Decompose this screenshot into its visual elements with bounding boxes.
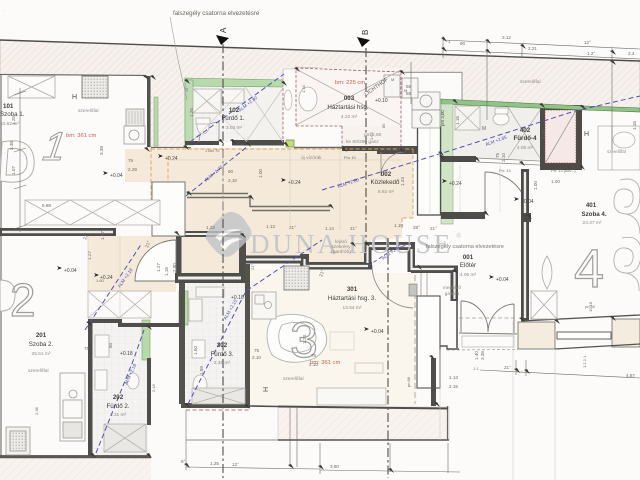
svg-text:1.60: 1.60 bbox=[193, 346, 198, 355]
svg-text:1.07: 1.07 bbox=[11, 166, 16, 175]
svg-text:2.29: 2.29 bbox=[128, 167, 137, 172]
svg-text:10 18: 10 18 bbox=[588, 301, 593, 312]
svg-text:1.25: 1.25 bbox=[11, 116, 16, 125]
svg-text:1.18: 1.18 bbox=[632, 121, 637, 130]
svg-text:Szoba 2.: Szoba 2. bbox=[29, 341, 54, 348]
svg-text:90: 90 bbox=[460, 41, 466, 46]
svg-text:2.21: 2.21 bbox=[528, 46, 537, 51]
svg-text:201: 201 bbox=[36, 332, 47, 339]
svg-text:Pn: 13 (köv...): Pn: 13 (köv...) bbox=[551, 168, 576, 173]
svg-text:M: M bbox=[482, 126, 486, 132]
svg-text:402: 402 bbox=[520, 127, 531, 134]
svg-text:szerelőfal: szerelőfal bbox=[520, 79, 541, 85]
svg-text:ke 80/260 ganz: ke 80/260 ganz bbox=[346, 139, 379, 145]
svg-text:4.22 m²: 4.22 m² bbox=[341, 114, 358, 120]
svg-text:003: 003 bbox=[344, 95, 355, 102]
svg-text:302: 302 bbox=[217, 342, 228, 349]
svg-text:301: 301 bbox=[347, 286, 358, 293]
svg-text:4.05 m²: 4.05 m² bbox=[517, 145, 534, 151]
svg-text:1.25: 1.25 bbox=[210, 461, 219, 466]
svg-text:401: 401 bbox=[586, 202, 597, 209]
svg-text:1.00: 1.00 bbox=[551, 179, 560, 184]
svg-text:4: 4 bbox=[574, 239, 604, 299]
svg-text:2.10: 2.10 bbox=[252, 355, 261, 360]
svg-text:+0.04: +0.04 bbox=[496, 277, 509, 283]
svg-text:H: H bbox=[72, 94, 77, 101]
svg-text:pm 3,00: pm 3,00 bbox=[440, 110, 445, 126]
svg-text:+0.04: +0.04 bbox=[521, 199, 534, 205]
svg-text:1.00: 1.00 bbox=[258, 169, 263, 178]
svg-text:1.14: 1.14 bbox=[325, 226, 334, 231]
svg-text:4.06 m²: 4.06 m² bbox=[460, 272, 477, 278]
svg-text:H: H bbox=[263, 387, 270, 392]
svg-text:Háztartási hsg.: Háztartási hsg. bbox=[327, 104, 369, 111]
svg-text:2: 2 bbox=[10, 274, 36, 326]
svg-text:75: 75 bbox=[495, 152, 500, 158]
svg-text:21°: 21° bbox=[250, 264, 255, 270]
svg-text:+0.04: +0.04 bbox=[110, 173, 123, 179]
svg-text:Pn: 13: Pn: 13 bbox=[499, 168, 511, 173]
svg-text:21°: 21° bbox=[350, 226, 357, 231]
svg-text:102: 102 bbox=[229, 107, 240, 114]
svg-text:szerelőfal: szerelőfal bbox=[607, 149, 626, 154]
svg-text:3.38: 3.38 bbox=[480, 351, 485, 360]
svg-text:2.18: 2.18 bbox=[151, 383, 156, 392]
svg-text:+0.10: +0.10 bbox=[231, 295, 244, 301]
svg-text:2.15: 2.15 bbox=[449, 384, 458, 389]
svg-text:25.51 m²: 25.51 m² bbox=[32, 351, 51, 357]
svg-text:szerelőfal: szerelőfal bbox=[78, 108, 99, 114]
svg-text:80: 80 bbox=[108, 342, 113, 348]
svg-text:101: 101 bbox=[3, 103, 14, 110]
svg-text:85: 85 bbox=[381, 123, 386, 128]
svg-text:H: H bbox=[584, 131, 589, 138]
svg-text:1.00: 1.00 bbox=[533, 181, 538, 190]
svg-text:1.63: 1.63 bbox=[369, 131, 374, 140]
svg-text:1.2 2.1: 1.2 2.1 bbox=[582, 355, 587, 368]
svg-text:Háztartási hsg. 3.: Háztartási hsg. 3. bbox=[328, 295, 376, 302]
svg-text:2.10: 2.10 bbox=[309, 362, 318, 367]
svg-text:1.40: 1.40 bbox=[474, 351, 479, 360]
svg-text:+0.10: +0.10 bbox=[375, 98, 388, 104]
svg-text:4.87: 4.87 bbox=[626, 373, 635, 378]
svg-text:+0.18: +0.18 bbox=[120, 351, 133, 357]
svg-text:1.22: 1.22 bbox=[206, 225, 215, 230]
svg-text:21°: 21° bbox=[430, 226, 437, 231]
svg-text:szerelőfal: szerelőfal bbox=[28, 368, 49, 374]
svg-text:1.13: 1.13 bbox=[449, 375, 458, 380]
svg-text:1.27: 1.27 bbox=[100, 231, 105, 240]
svg-text:001: 001 bbox=[463, 254, 474, 261]
svg-text:1.34: 1.34 bbox=[301, 84, 306, 93]
svg-text:1 köv 70: 1 köv 70 bbox=[205, 149, 219, 153]
svg-text:bm: 361 cm: bm: 361 cm bbox=[66, 133, 96, 139]
svg-text:meglévő: meglévő bbox=[443, 285, 461, 291]
svg-text:+0.04: +0.04 bbox=[64, 268, 77, 274]
svg-text:12°: 12° bbox=[232, 462, 239, 467]
svg-text:19: 19 bbox=[184, 87, 189, 92]
svg-text:falszegély csatorna elvezetésr: falszegély csatorna elvezetésre bbox=[173, 10, 260, 17]
svg-text:9.92 m²: 9.92 m² bbox=[378, 189, 395, 195]
svg-text:bm: 225 cm: bm: 225 cm bbox=[335, 80, 365, 86]
svg-text:002: 002 bbox=[381, 171, 392, 178]
svg-text:28°: 28° bbox=[413, 225, 420, 230]
svg-text:A: A bbox=[219, 27, 228, 33]
svg-text:1.13: 1.13 bbox=[266, 224, 275, 229]
svg-text:(gardrób): (gardrób) bbox=[331, 249, 351, 255]
svg-text:1.16: 1.16 bbox=[164, 267, 169, 276]
svg-text:2,10: 2,10 bbox=[228, 178, 237, 183]
svg-text:75: 75 bbox=[128, 158, 134, 163]
svg-text:90: 90 bbox=[228, 169, 234, 174]
svg-text:+0.24: +0.24 bbox=[165, 156, 178, 162]
svg-text:12°: 12° bbox=[584, 40, 591, 45]
svg-text:75: 75 bbox=[254, 348, 260, 353]
svg-text:Fürdő 1.: Fürdő 1. bbox=[221, 115, 244, 122]
svg-text:1.2°: 1.2° bbox=[587, 51, 595, 56]
svg-text:1.16: 1.16 bbox=[455, 116, 460, 125]
svg-text:falszegély csatorna elvezetésr: falszegély csatorna elvezetésre bbox=[426, 244, 504, 250]
svg-text:1.43: 1.43 bbox=[400, 177, 405, 186]
svg-text:Szoba 4.: Szoba 4. bbox=[581, 211, 606, 218]
svg-text:Fürdő 2.: Fürdő 2. bbox=[106, 403, 129, 410]
svg-text:5.88: 5.88 bbox=[42, 203, 51, 208]
svg-text:3.31 m²: 3.31 m² bbox=[110, 412, 127, 418]
svg-text:+0.04: +0.04 bbox=[371, 329, 384, 335]
svg-text:3.80: 3.80 bbox=[330, 464, 339, 469]
svg-text:pn 88: pn 88 bbox=[406, 376, 411, 387]
svg-text:szerelőfal: szerelőfal bbox=[283, 376, 304, 382]
svg-text:1.23: 1.23 bbox=[302, 335, 307, 344]
svg-text:.: . bbox=[3, 7, 4, 13]
svg-text:1.10: 1.10 bbox=[394, 223, 403, 228]
svg-text:13.54 m²: 13.54 m² bbox=[343, 305, 362, 311]
svg-text:M: M bbox=[404, 88, 407, 93]
svg-text:22.62 m²: 22.62 m² bbox=[0, 121, 19, 127]
svg-text:Fürdő-4: Fürdő-4 bbox=[513, 135, 537, 142]
svg-text:3.38: 3.38 bbox=[9, 141, 14, 150]
svg-text:3.03 m²: 3.03 m² bbox=[226, 125, 243, 131]
svg-text:2.46 m²: 2.46 m² bbox=[214, 360, 231, 366]
svg-text:Fürdő 3.: Fürdő 3. bbox=[210, 351, 233, 358]
svg-text:2.10: 2.10 bbox=[501, 153, 506, 162]
svg-text:2.38: 2.38 bbox=[34, 406, 39, 415]
svg-text:1.23: 1.23 bbox=[541, 130, 546, 139]
svg-text:Közlekedő: Közlekedő bbox=[371, 179, 400, 186]
svg-text:1.27: 1.27 bbox=[156, 263, 161, 272]
svg-text:21°: 21° bbox=[504, 365, 511, 370]
svg-text:Pro 10: Pro 10 bbox=[344, 155, 357, 160]
svg-text:3.12: 3.12 bbox=[502, 35, 511, 40]
svg-text:1: 1 bbox=[448, 39, 451, 44]
svg-text:gázóra: gázóra bbox=[445, 291, 460, 297]
svg-text:1.1: 1.1 bbox=[473, 366, 479, 371]
svg-text:24.37 m²: 24.37 m² bbox=[583, 220, 602, 226]
svg-text:1.89: 1.89 bbox=[199, 366, 204, 375]
svg-text:202: 202 bbox=[113, 394, 124, 401]
svg-text:®: ® bbox=[456, 232, 462, 240]
svg-text:B: B bbox=[361, 30, 370, 35]
svg-text:1.25: 1.25 bbox=[189, 108, 194, 117]
svg-text:2.80: 2.80 bbox=[172, 263, 177, 272]
svg-text:1.60: 1.60 bbox=[96, 278, 105, 283]
svg-text:M: M bbox=[391, 77, 394, 82]
svg-text:75: 75 bbox=[311, 353, 317, 358]
svg-text:Előtér: Előtér bbox=[460, 262, 476, 269]
svg-text:6°: 6° bbox=[181, 459, 186, 464]
svg-text:2.4: 2.4 bbox=[628, 51, 635, 56]
svg-text:75: 75 bbox=[84, 346, 90, 351]
svg-text:3.38: 3.38 bbox=[99, 146, 104, 155]
